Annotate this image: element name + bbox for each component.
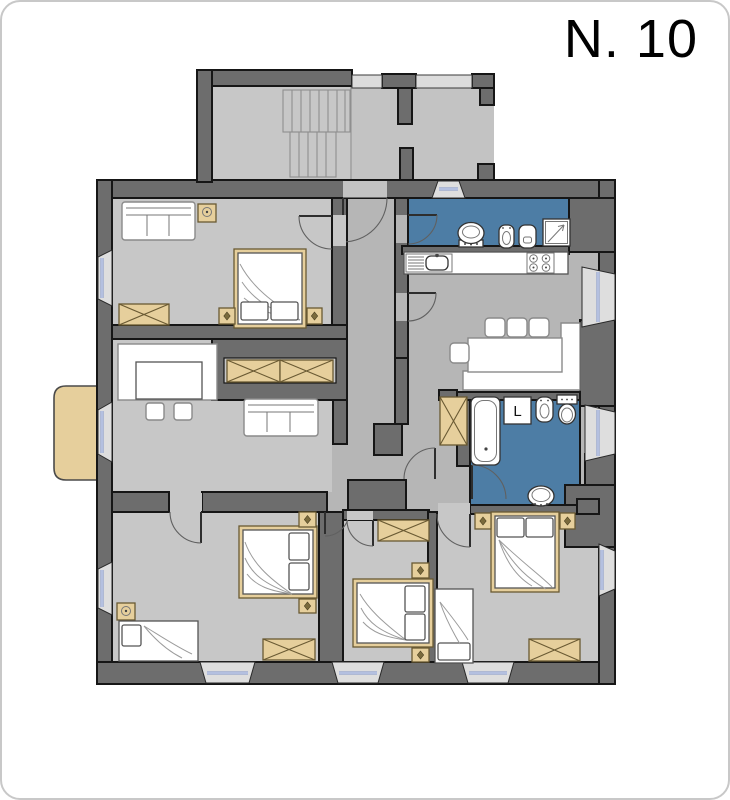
bathtub bbox=[471, 397, 500, 465]
window-bathroom-right bbox=[585, 405, 615, 461]
window-bedroom-bl-left bbox=[98, 562, 112, 615]
bidet bbox=[536, 397, 553, 422]
lamp-table-bedroom-bl bbox=[117, 603, 135, 620]
washing-machine-label: L bbox=[513, 403, 521, 420]
window-bedroom-br-bottom bbox=[462, 662, 514, 683]
floor-stairwell bbox=[212, 86, 352, 180]
washing-machine: L bbox=[504, 397, 531, 424]
window-bedroom-bl-bottom bbox=[200, 662, 255, 683]
sofa-living bbox=[244, 399, 318, 436]
nightstand bbox=[219, 308, 235, 324]
wardrobe-bedroom-bl bbox=[263, 639, 315, 660]
chair bbox=[529, 318, 549, 337]
window-bedroom-br-right bbox=[599, 544, 615, 596]
nightstand bbox=[299, 512, 316, 527]
single-bed-bedroom-br bbox=[435, 589, 473, 663]
wardrobe-niche bbox=[227, 360, 333, 382]
wash-basin bbox=[458, 223, 484, 248]
floor-plan-page: N. 10 bbox=[0, 0, 730, 800]
wardrobe-bedroom-bm bbox=[378, 520, 429, 541]
stool bbox=[146, 403, 164, 420]
double-bed-bedroom-tl bbox=[234, 249, 306, 328]
window-bathroom-top bbox=[432, 181, 465, 198]
cabinet-living bbox=[118, 344, 217, 400]
lamp-table-bedroom-tl bbox=[198, 204, 216, 222]
wash-basin bbox=[528, 486, 554, 506]
nightstand bbox=[307, 308, 322, 324]
chair bbox=[485, 318, 505, 337]
window-bedroom-tl bbox=[98, 250, 112, 306]
shower bbox=[543, 219, 570, 246]
bidet bbox=[499, 225, 514, 248]
wardrobe-hall bbox=[440, 397, 467, 445]
chair bbox=[507, 318, 527, 337]
stool bbox=[174, 403, 192, 420]
toilet bbox=[557, 395, 577, 424]
wardrobe-bedroom-tl bbox=[119, 304, 169, 325]
floor-bath-door bbox=[457, 464, 470, 507]
single-bed-bedroom-bl bbox=[119, 621, 198, 661]
window-balcony-door bbox=[98, 402, 112, 462]
nightstand bbox=[412, 648, 429, 662]
floor-plan-drawing: L bbox=[2, 2, 730, 800]
window-kitchen-right bbox=[582, 267, 615, 327]
double-bed-bedroom-bl bbox=[239, 526, 317, 598]
sofa-bedroom-tl bbox=[122, 202, 195, 240]
kitchen-counter bbox=[404, 252, 568, 274]
nightstand bbox=[412, 563, 429, 578]
chair bbox=[450, 343, 469, 363]
wardrobe-bedroom-br bbox=[529, 639, 580, 661]
balcony bbox=[54, 386, 101, 480]
toilet bbox=[519, 225, 536, 248]
nightstand bbox=[475, 513, 491, 529]
double-bed-bedroom-br bbox=[491, 512, 559, 592]
nightstand bbox=[299, 599, 316, 613]
nightstand bbox=[560, 513, 575, 529]
dining-table bbox=[468, 338, 562, 372]
floor-landing bbox=[352, 86, 494, 180]
window-bedroom-bm-bottom bbox=[332, 662, 384, 683]
double-bed-bedroom-bm bbox=[353, 579, 433, 647]
